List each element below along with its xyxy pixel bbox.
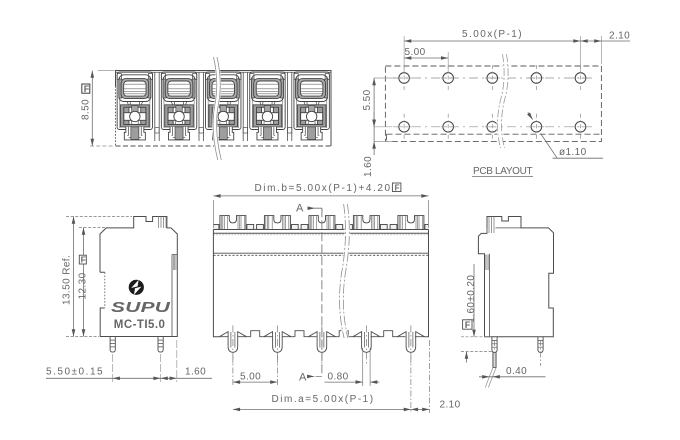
svg-text:5.50±0.15: 5.50±0.15 (46, 367, 103, 378)
svg-text:ø1.10: ø1.10 (559, 147, 587, 158)
svg-text:5.50: 5.50 (362, 89, 373, 110)
svg-text:5.00: 5.00 (405, 47, 426, 58)
svg-text:2.10: 2.10 (609, 31, 630, 42)
svg-text:Dim.a=5.00x(P-1): Dim.a=5.00x(P-1) (272, 394, 374, 405)
svg-text:F: F (395, 183, 400, 192)
svg-text:F: F (81, 255, 86, 265)
svg-text:Dim.b=5.00x(P-1)+4.20: Dim.b=5.00x(P-1)+4.20 (255, 183, 391, 194)
svg-text:2.10: 2.10 (440, 400, 461, 411)
svg-text:MC-TI5.0: MC-TI5.0 (114, 319, 166, 331)
svg-text:8.50: 8.50 (80, 99, 91, 120)
svg-text:PCB LAYOUT: PCB LAYOUT (473, 166, 533, 177)
svg-text:1.60: 1.60 (363, 156, 374, 177)
svg-text:A: A (299, 371, 307, 383)
svg-text:F: F (465, 320, 471, 330)
svg-text:5.00x(P-1): 5.00x(P-1) (462, 29, 522, 40)
svg-text:0.40: 0.40 (506, 366, 527, 377)
svg-text:SUPU: SUPU (111, 299, 171, 315)
svg-text:1.60±0.20: 1.60±0.20 (466, 275, 477, 323)
svg-text:0.80: 0.80 (328, 371, 349, 382)
svg-text:F: F (84, 84, 90, 94)
svg-text:A: A (296, 202, 304, 214)
svg-text:5.00: 5.00 (240, 371, 261, 382)
svg-text:12.30: 12.30 (78, 272, 89, 299)
svg-text:1.60: 1.60 (185, 367, 206, 378)
svg-text:13.50 Ref.: 13.50 Ref. (62, 255, 73, 305)
